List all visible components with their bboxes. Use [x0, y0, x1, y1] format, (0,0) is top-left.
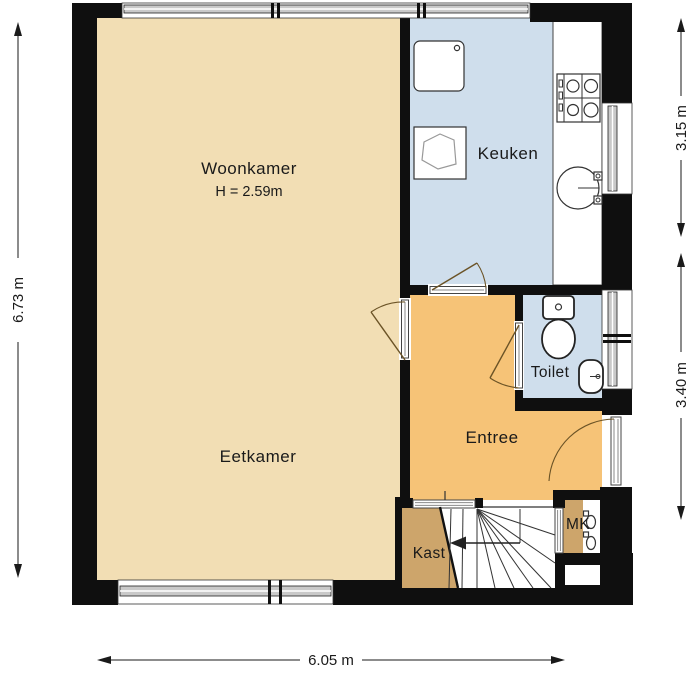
woonkamer-label: Woonkamer — [201, 159, 297, 178]
wall-stairs-top-frame — [402, 498, 413, 508]
wall-right-upper — [602, 3, 632, 105]
floorplan-canvas: Woonkamer H = 2.59m Eetkamer Keuken Toil… — [0, 0, 700, 700]
toilet-fixture-icon — [542, 296, 575, 359]
wall-entree-divider — [400, 360, 410, 500]
wall-kitchen-bottom-b — [488, 285, 603, 295]
wall-bottom-right-band — [395, 588, 633, 605]
floors — [97, 18, 603, 588]
stove-icon — [557, 74, 600, 122]
wall-stairs-mk-post — [553, 490, 565, 508]
dimension-right-bottom: 3.40 m — [673, 253, 690, 520]
wall-right-mid — [602, 192, 632, 292]
wall-bottom-mid — [333, 580, 395, 605]
wall-bottom-left — [72, 580, 118, 605]
living-dining-floor — [97, 18, 407, 583]
mk-label: MK — [566, 516, 590, 533]
woonkamer-height-label: H = 2.59m — [215, 184, 282, 200]
dim-left-label: 6.73 m — [10, 277, 27, 323]
front-door-leafclosed — [611, 417, 621, 485]
wall-stairs-left — [395, 497, 402, 588]
wall-stairs-top-post — [475, 498, 483, 508]
dimension-right-top: 3.15 m — [673, 18, 690, 237]
kitchen-sink-icon — [557, 167, 602, 209]
dim-bottom-label: 6.05 m — [308, 652, 354, 669]
fridge-hinge-icon — [454, 45, 459, 50]
wall-left — [72, 3, 97, 605]
dim-right-top-label: 3.15 m — [673, 105, 690, 151]
kitchen-counter — [553, 20, 602, 285]
dimension-left: 6.73 m — [10, 22, 27, 578]
wall-top-left — [72, 3, 122, 18]
floorplan-page: Woonkamer H = 2.59m Eetkamer Keuken Toil… — [0, 0, 700, 700]
appliance-icon — [414, 127, 466, 179]
dim-right-bottom-label: 3.40 m — [673, 362, 690, 408]
stairs-floor — [440, 507, 555, 588]
door-meter-closet — [555, 508, 563, 553]
eetkamer-label: Eetkamer — [220, 447, 297, 466]
keuken-label: Keuken — [478, 144, 539, 163]
wall-kitchen-divider — [400, 18, 410, 298]
kast-label: Kast — [413, 545, 446, 562]
door-closet — [413, 500, 475, 508]
exterior-notch — [565, 565, 600, 585]
toilet-label: Toilet — [531, 364, 570, 381]
toilet-sink-icon — [579, 360, 603, 393]
dimension-bottom: 6.05 m — [97, 652, 565, 669]
wall-right-toilet-foot — [602, 387, 632, 415]
wall-toilet-left-a — [515, 295, 523, 323]
wall-toilet-bottom — [515, 398, 603, 411]
entree-label: Entree — [465, 428, 518, 447]
wall-kitchen-bottom-a — [400, 285, 428, 295]
